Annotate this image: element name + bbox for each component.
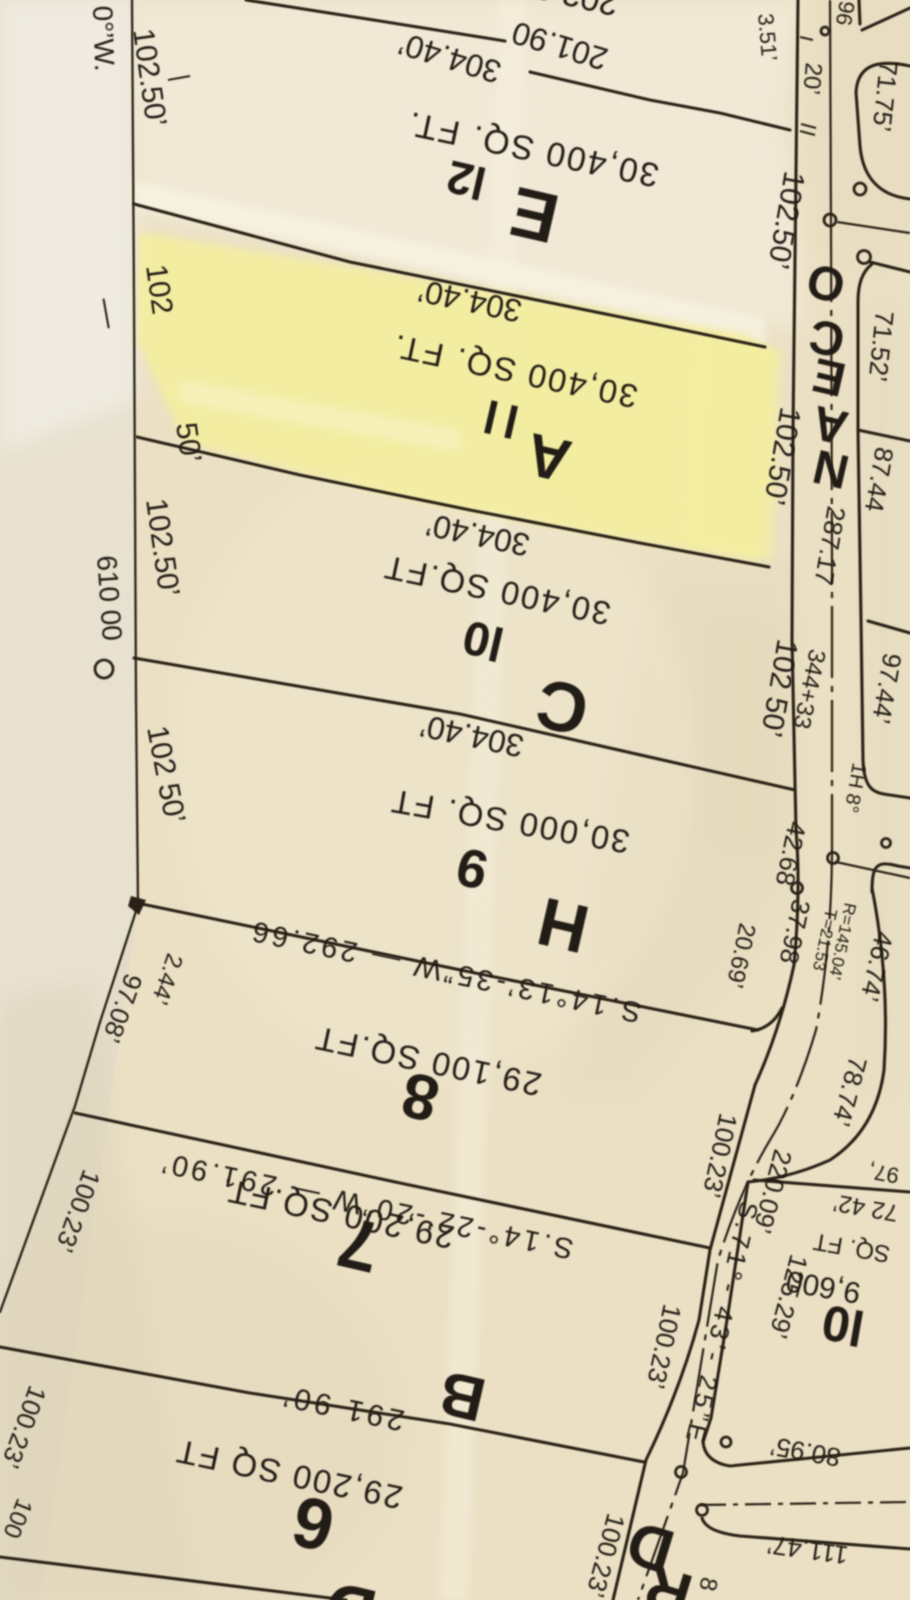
- svg-text:97,: 97,: [867, 1159, 901, 1189]
- svg-text:—: —: [89, 295, 127, 330]
- svg-text:610 00: 610 00: [91, 554, 128, 642]
- svg-text:96: 96: [831, 0, 860, 28]
- svg-text:20’: 20’: [797, 61, 827, 95]
- svg-text:3.51’: 3.51’: [753, 12, 782, 62]
- svg-text:102: 102: [139, 262, 179, 316]
- svg-text:0°’W.: 0°’W.: [87, 5, 120, 72]
- svg-text:50’: 50’: [169, 420, 207, 464]
